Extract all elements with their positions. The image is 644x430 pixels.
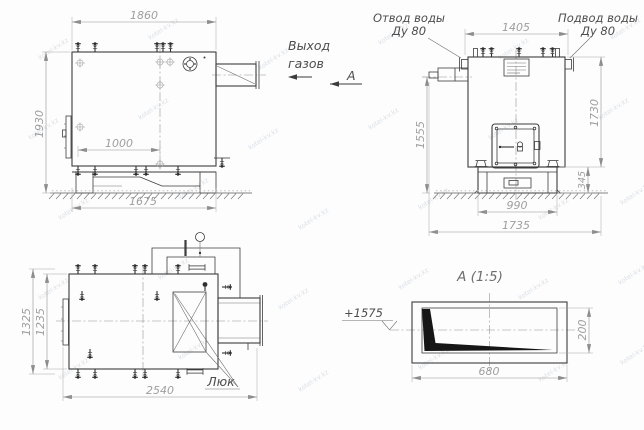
water-outlet-label-line2: Ду 80 (391, 24, 426, 38)
front-view: 1405 1555 1730 345 990 1735 Отвод воды Д… (373, 11, 638, 236)
dim-section-duct-width: 680 (479, 365, 500, 378)
watermark-text: kotel-kv.kz (247, 126, 281, 152)
dim-front-body-height: 1730 (588, 99, 601, 127)
watermark-text: kotel-kv.kz (597, 96, 631, 122)
hatch-label: Люк (206, 374, 235, 389)
elevation-mark-label: +1575 (344, 306, 383, 320)
watermark-text: kotel-kv.kz (57, 196, 91, 222)
drawing-canvas: kotel-kv.kz kotel-kv.kz kotel-kv.kz kote… (0, 0, 644, 430)
section-cut-arrow-icon (330, 81, 362, 87)
watermark-text: kotel-kv.kz (517, 276, 551, 302)
gas-exit-label-line1: Выход (288, 38, 330, 53)
boiler-technical-drawing: kotel-kv.kz kotel-kv.kz kotel-kv.kz kote… (0, 0, 644, 430)
dim-front-support-width: 990 (507, 199, 528, 212)
dim-front-top-width: 1405 (502, 21, 530, 34)
watermark-text: kotel-kv.kz (137, 96, 171, 122)
dim-front-support-height: 345 (577, 171, 588, 189)
dim-side-overall-height: 1930 (33, 110, 46, 138)
water-supply-label-line2: Ду 80 (580, 24, 615, 38)
watermark-text: kotel-kv.kz (37, 36, 71, 62)
dim-plan-body-depth: 1235 (34, 308, 47, 336)
watermark-text: kotel-kv.kz (177, 176, 211, 202)
water-outlet-label-line1: Отвод воды (373, 11, 445, 25)
watermark-layer: kotel-kv.kz kotel-kv.kz kotel-kv.kz kote… (27, 16, 644, 394)
dim-side-top-width: 1860 (130, 9, 158, 22)
gas-flow-arrow-icon (288, 74, 312, 80)
section-marker-label: А (346, 68, 356, 83)
gas-exit-label-line2: газов (288, 56, 324, 71)
level-mark-icon (382, 321, 397, 330)
watermark-text: kotel-kv.kz (619, 341, 644, 367)
water-supply-label-line1: Подвод воды (558, 11, 638, 25)
watermark-text: kotel-kv.kz (157, 256, 191, 282)
watermark-text: kotel-kv.kz (537, 196, 571, 222)
watermark-text: kotel-kv.kz (397, 266, 431, 292)
dim-front-overall-width: 1735 (502, 219, 530, 232)
section-title: А (1:5) (456, 269, 503, 285)
dim-side-frame-length: 1675 (129, 195, 157, 208)
dim-section-duct-height: 200 (576, 320, 589, 341)
watermark-text: kotel-kv.kz (37, 276, 71, 302)
watermark-text: kotel-kv.kz (277, 286, 311, 312)
watermark-text: kotel-kv.kz (297, 368, 331, 394)
dim-side-drain-spacing: 1000 (105, 137, 133, 150)
watermark-text: kotel-kv.kz (257, 46, 291, 72)
watermark-text: kotel-kv.kz (537, 358, 571, 384)
watermark-text: kotel-kv.kz (177, 336, 211, 362)
hatch-outline (173, 292, 206, 352)
watermark-text: kotel-kv.kz (497, 36, 531, 62)
watermark-text: kotel-kv.kz (617, 261, 644, 287)
watermark-text: kotel-kv.kz (417, 186, 451, 212)
watermark-text: kotel-kv.kz (297, 206, 331, 232)
dim-plan-overall-depth: 1325 (20, 308, 33, 336)
dim-front-burner-height: 1555 (414, 121, 427, 149)
dim-plan-overall-length: 2540 (146, 384, 174, 397)
watermark-text: kotel-kv.kz (619, 181, 644, 207)
watermark-text: kotel-kv.kz (367, 106, 401, 132)
